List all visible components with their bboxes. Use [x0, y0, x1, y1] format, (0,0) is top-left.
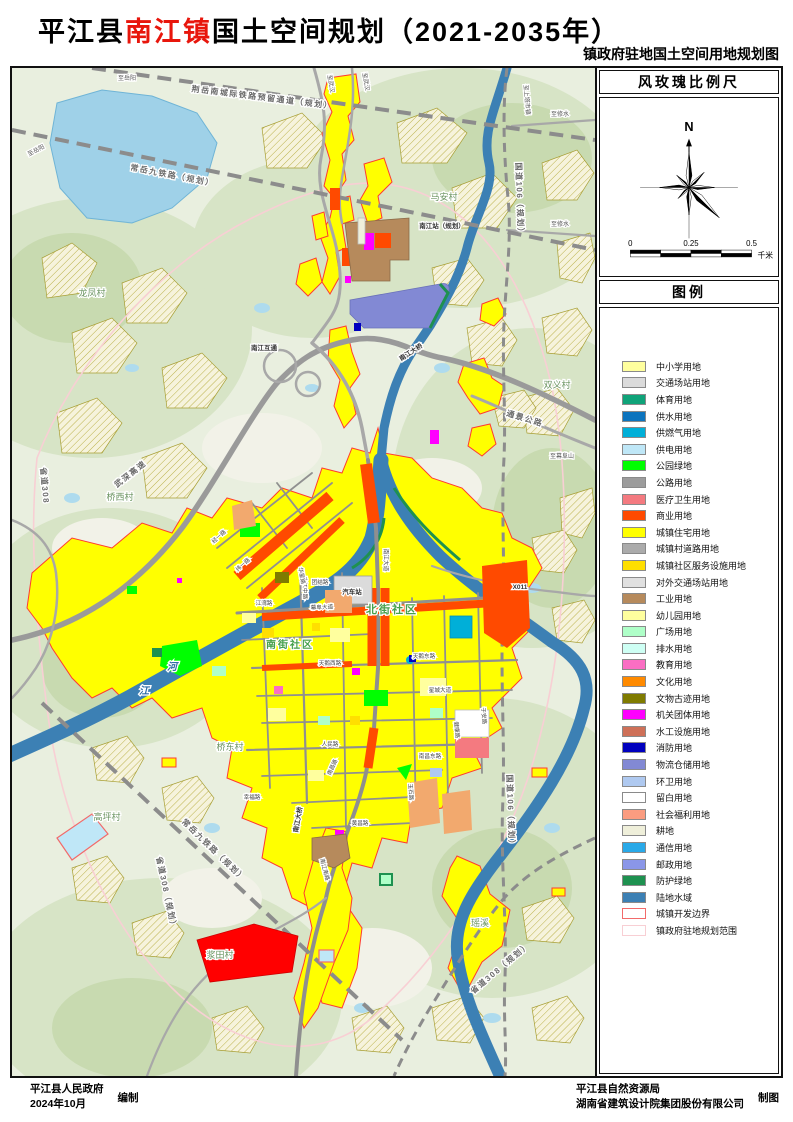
- compass-box: N 0 0.: [599, 97, 779, 277]
- map-label: 至幕阜山: [550, 452, 574, 460]
- svg-text:千米: 千米: [757, 250, 773, 260]
- legend-label: 机关团体用地: [656, 708, 710, 721]
- map-label: 团结路: [312, 578, 329, 586]
- compass-header: 风玫瑰比例尺: [599, 70, 779, 94]
- map-label: 浆田村: [206, 949, 233, 960]
- legend-swatch: [622, 659, 646, 670]
- legend-item: 陆地水域: [622, 889, 778, 906]
- legend-swatch: [622, 477, 646, 488]
- header: 平江县南江镇国土空间规划（2021-2035年） 镇政府驻地国土空间用地规划图: [0, 0, 793, 49]
- map-label: 天鹅东路: [413, 652, 436, 660]
- legend-swatch: [622, 411, 646, 422]
- legend-swatch: [622, 394, 646, 405]
- footer-left-org: 平江县人民政府: [30, 1082, 104, 1097]
- legend-item: 商业用地: [622, 507, 778, 524]
- legend-item: 供燃气用地: [622, 424, 778, 441]
- legend-swatch: [622, 759, 646, 770]
- legend-swatch: [622, 875, 646, 886]
- footer-right-role: 制图: [758, 1090, 779, 1105]
- legend-label: 交通场站用地: [656, 376, 710, 389]
- map-label: 瑶溪: [471, 917, 489, 928]
- legend-swatch: [622, 577, 646, 588]
- legend-swatch: [622, 510, 646, 521]
- legend-item: 通信用地: [622, 839, 778, 856]
- legend-swatch: [622, 925, 646, 936]
- legend-label: 商业用地: [656, 509, 692, 522]
- parcel-commercial: [375, 233, 391, 248]
- plan-sheet: 平江县南江镇国土空间规划（2021-2035年） 镇政府驻地国土空间用地规划图: [0, 0, 793, 1122]
- legend-item: 邮政用地: [622, 856, 778, 873]
- map-label: X011: [513, 584, 528, 591]
- legend-item: 社会福利用地: [622, 806, 778, 823]
- legend-item: 城镇村道路用地: [622, 541, 778, 558]
- footer: 平江县人民政府 2024年10月 编制 平江县自然资源局 湖南省建筑设计院集团股…: [0, 1082, 793, 1112]
- legend-item: 广场用地: [622, 624, 778, 641]
- legend-item: 医疗卫生用地: [622, 491, 778, 508]
- legend-item: 供电用地: [622, 441, 778, 458]
- north-label: N: [684, 119, 693, 134]
- legend-label: 消防用地: [656, 741, 692, 754]
- legend-swatch: [622, 494, 646, 505]
- legend-item: 防护绿地: [622, 872, 778, 889]
- legend-swatch: [622, 460, 646, 471]
- legend-item: 体育用地: [622, 391, 778, 408]
- legend-swatch: [622, 792, 646, 803]
- map-frame: 龙凤村桥西村马安村双义村桥东村高坪村浆田村瑶溪北街社区南街社区河江幕阜大道南江大…: [10, 66, 783, 1078]
- legend-swatch: [622, 742, 646, 753]
- legend-label: 工业用地: [656, 592, 692, 605]
- legend-item: 留白用地: [622, 789, 778, 806]
- title-highlight: 南江镇: [125, 17, 212, 47]
- map-label: 马安村: [430, 191, 457, 202]
- legend-swatch: [622, 776, 646, 787]
- legend-label: 幼儿园用地: [656, 609, 701, 622]
- parcel-heritage: [275, 572, 289, 583]
- legend-item: 文化用地: [622, 673, 778, 690]
- legend-swatch: [622, 427, 646, 438]
- legend-label: 医疗卫生用地: [656, 493, 710, 506]
- legend-swatch: [622, 444, 646, 455]
- legend-item: 对外交通场站用地: [622, 574, 778, 591]
- footer-left-role: 编制: [118, 1090, 139, 1105]
- svg-text:0: 0: [628, 239, 633, 248]
- legend-item: 工业用地: [622, 590, 778, 607]
- map-label: 南昌东路: [419, 752, 442, 760]
- legend-item: 镇政府驻地规划范围: [622, 922, 778, 939]
- legend-label: 体育用地: [656, 393, 692, 406]
- legend-swatch: [622, 610, 646, 621]
- legend-swatch: [622, 377, 646, 388]
- map-label: 天鹅西路: [319, 659, 342, 667]
- legend-label: 供水用地: [656, 410, 692, 423]
- legend-item: 文物古迹用地: [622, 690, 778, 707]
- legend-label: 供电用地: [656, 443, 692, 456]
- footer-right-org1: 平江县自然资源局: [576, 1082, 744, 1097]
- map-area: 龙凤村桥西村马安村双义村桥东村高坪村浆田村瑶溪北街社区南街社区河江幕阜大道南江大…: [12, 68, 597, 1076]
- sidebar: 风玫瑰比例尺 N: [597, 68, 781, 1076]
- svg-text:0.25: 0.25: [683, 239, 699, 248]
- legend-list: 中小学用地交通场站用地体育用地供水用地供燃气用地供电用地公园绿地公路用地医疗卫生…: [599, 307, 779, 1074]
- legend-item: 城镇开发边界: [622, 906, 778, 923]
- map-label: 幸福路: [244, 793, 261, 801]
- legend-swatch: [622, 908, 646, 919]
- legend-label: 城镇开发边界: [656, 907, 710, 920]
- legend-item: 交通场站用地: [622, 375, 778, 392]
- legend-item: 机关团体用地: [622, 706, 778, 723]
- legend-label: 耕地: [656, 824, 674, 837]
- legend-label: 物流仓储用地: [656, 758, 710, 771]
- wind-rose: N 0 0.: [601, 101, 777, 273]
- legend-swatch: [622, 825, 646, 836]
- map-label: 桥东村: [216, 741, 243, 752]
- map-label: 北街社区: [366, 602, 418, 616]
- legend-label: 水工设施用地: [656, 725, 710, 738]
- legend-item: 物流仓储用地: [622, 756, 778, 773]
- map-label: 龙凤村: [78, 287, 105, 298]
- legend-label: 邮政用地: [656, 858, 692, 871]
- map-label: 至修水: [551, 220, 569, 228]
- map-label: 至修水: [551, 110, 569, 118]
- legend-item: 幼儿园用地: [622, 607, 778, 624]
- parcel-education: [274, 686, 283, 694]
- title-prefix: 平江县: [38, 17, 125, 47]
- legend-swatch: [622, 709, 646, 720]
- map-label: 桥西村: [106, 491, 133, 502]
- legend-label: 城镇村道路用地: [656, 542, 719, 555]
- legend-item: 环卫用地: [622, 773, 778, 790]
- legend-label: 社会福利用地: [656, 808, 710, 821]
- footer-right: 平江县自然资源局 湖南省建筑设计院集团股份有限公司 制图: [576, 1082, 779, 1112]
- map-label: 江湾路: [256, 599, 273, 607]
- legend-item: 耕地: [622, 823, 778, 840]
- legend-label: 对外交通场站用地: [656, 576, 728, 589]
- legend-swatch: [622, 527, 646, 538]
- legend-label: 环卫用地: [656, 775, 692, 788]
- legend-item: 公园绿地: [622, 458, 778, 475]
- map-label: 人民路: [322, 740, 339, 748]
- map-subtitle: 镇政府驻地国土空间用地规划图: [583, 44, 779, 64]
- legend-swatch: [622, 361, 646, 372]
- legend-label: 公路用地: [656, 476, 692, 489]
- legend-item: 消防用地: [622, 740, 778, 757]
- legend-swatch: [622, 643, 646, 654]
- legend-item: 中小学用地: [622, 358, 778, 375]
- map-label: 双义村: [543, 379, 570, 390]
- legend-swatch: [622, 859, 646, 870]
- legend-swatch: [622, 726, 646, 737]
- legend-label: 文化用地: [656, 675, 692, 688]
- legend-label: 城镇社区服务设施用地: [656, 559, 746, 572]
- title-suffix: 国土空间规划（2021-2035年）: [212, 17, 620, 47]
- legend-label: 城镇住宅用地: [656, 526, 710, 539]
- legend-label: 防护绿地: [656, 874, 692, 887]
- legend-item: 供水用地: [622, 408, 778, 425]
- map-svg: 龙凤村桥西村马安村双义村桥东村高坪村浆田村瑶溪北街社区南街社区河江幕阜大道南江大…: [12, 68, 595, 1076]
- map-label: 南江互通: [251, 343, 278, 352]
- map-label: 汽车站: [342, 587, 362, 596]
- legend-swatch: [622, 543, 646, 554]
- legend-swatch: [622, 676, 646, 687]
- legend-item: 排水用地: [622, 640, 778, 657]
- legend-item: 城镇住宅用地: [622, 524, 778, 541]
- parcel-gas: [450, 616, 472, 638]
- map-label: 高坪村: [93, 811, 120, 822]
- legend-swatch: [622, 560, 646, 571]
- legend-item: 公路用地: [622, 474, 778, 491]
- map-label: 至岳阳: [118, 74, 136, 82]
- map-label: 黄昌路: [352, 819, 369, 827]
- legend-label: 公园绿地: [656, 459, 692, 472]
- legend-label: 陆地水域: [656, 891, 692, 904]
- legend-label: 供燃气用地: [656, 426, 701, 439]
- legend-swatch: [622, 892, 646, 903]
- legend-swatch: [622, 842, 646, 853]
- scale-bar: 0 0.25 0.5 千米: [628, 239, 773, 260]
- legend-label: 排水用地: [656, 642, 692, 655]
- legend-label: 通信用地: [656, 841, 692, 854]
- legend-label: 留白用地: [656, 791, 692, 804]
- parcel-government: [364, 233, 374, 250]
- legend-swatch: [622, 626, 646, 637]
- map-label: 星城大道: [429, 686, 452, 694]
- map-label: 南江站（规划）: [419, 221, 465, 230]
- footer-left-date: 2024年10月: [30, 1097, 104, 1112]
- legend-item: 教育用地: [622, 657, 778, 674]
- legend-label: 教育用地: [656, 658, 692, 671]
- svg-text:0.5: 0.5: [746, 239, 758, 248]
- footer-right-org2: 湖南省建筑设计院集团股份有限公司: [576, 1097, 744, 1112]
- footer-left: 平江县人民政府 2024年10月 编制: [30, 1082, 139, 1112]
- legend-swatch: [622, 593, 646, 604]
- legend-item: 水工设施用地: [622, 723, 778, 740]
- legend-label: 广场用地: [656, 625, 692, 638]
- legend-label: 镇政府驻地规划范围: [656, 924, 737, 937]
- map-label: 南街社区: [266, 638, 314, 651]
- legend-header: 图例: [599, 280, 779, 304]
- legend-swatch: [622, 693, 646, 704]
- parcel-medical: [455, 738, 489, 758]
- wind-rose-petals: [660, 152, 720, 218]
- map-label: 南江大道: [382, 549, 390, 572]
- legend-label: 文物古迹用地: [656, 692, 710, 705]
- legend-item: 城镇社区服务设施用地: [622, 557, 778, 574]
- legend-swatch: [622, 809, 646, 820]
- legend-label: 中小学用地: [656, 360, 701, 373]
